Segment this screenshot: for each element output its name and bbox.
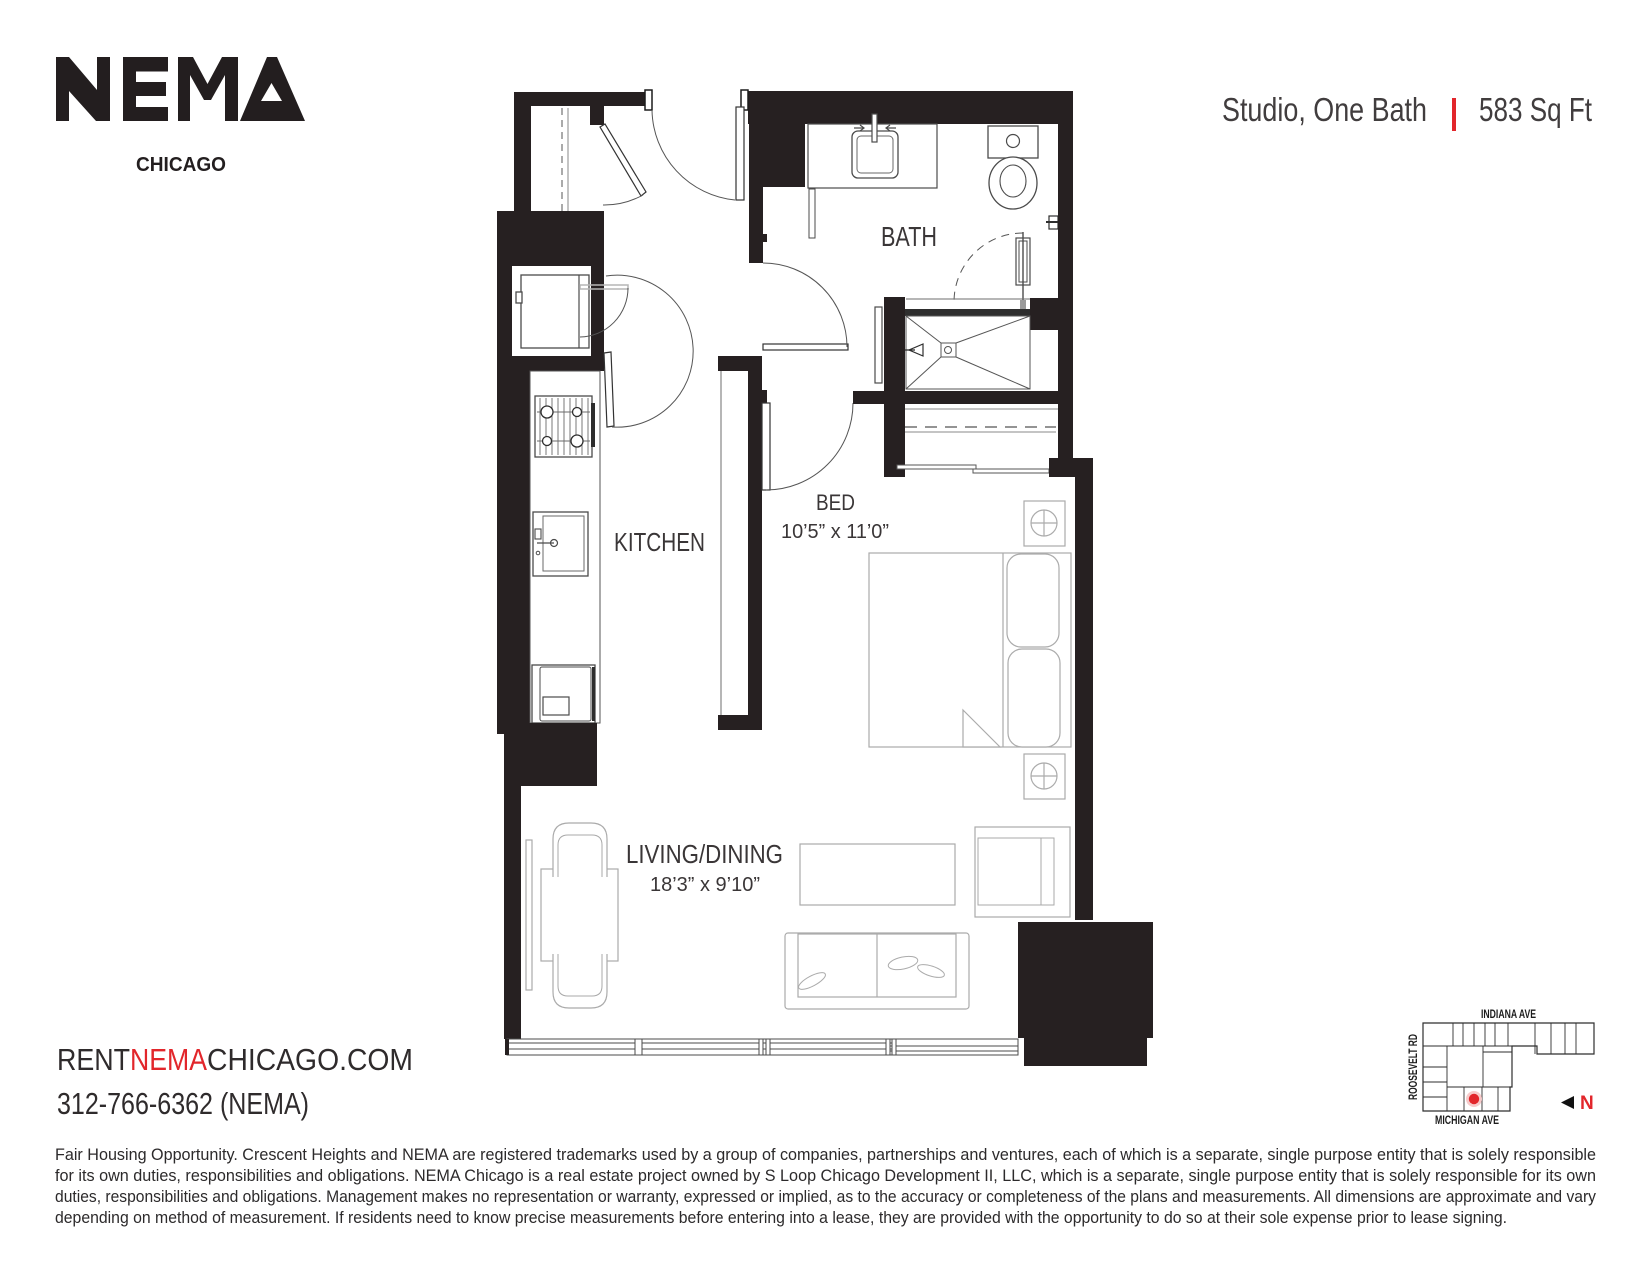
svg-text:Studio, One Bath: Studio, One Bath <box>1222 91 1427 128</box>
svg-text:MICHIGAN AVE: MICHIGAN AVE <box>1435 1113 1499 1127</box>
svg-text:CHICAGO: CHICAGO <box>136 154 226 176</box>
svg-text:NEMA: NEMA <box>130 1042 207 1077</box>
svg-text:583 Sq Ft: 583 Sq Ft <box>1479 91 1592 128</box>
svg-text:BED: BED <box>816 490 855 515</box>
svg-text:CHICAGO.COM: CHICAGO.COM <box>207 1042 413 1077</box>
svg-text:Fair Housing Opportunity. Cres: Fair Housing Opportunity. Crescent Heigh… <box>55 1145 1596 1164</box>
svg-text:10’5” x 11’0”: 10’5” x 11’0” <box>781 521 889 543</box>
svg-text:RENT: RENT <box>57 1042 130 1077</box>
svg-text:ROOSEVELT RD: ROOSEVELT RD <box>1406 1034 1420 1100</box>
svg-text:INDIANA AVE: INDIANA AVE <box>1481 1007 1536 1021</box>
svg-text:depending on method of measure: depending on method of measurement. If r… <box>55 1208 1507 1227</box>
svg-text:LIVING/DINING: LIVING/DINING <box>626 839 783 869</box>
svg-text:18’3” x 9’10”: 18’3” x 9’10” <box>650 874 760 896</box>
svg-text:BATH: BATH <box>881 221 937 252</box>
svg-text:KITCHEN: KITCHEN <box>614 527 705 557</box>
svg-text:duties, responsibilities and o: duties, responsibilities and obligations… <box>55 1187 1596 1206</box>
svg-text:for its own duties, responsibi: for its own duties, responsibilities and… <box>55 1166 1596 1185</box>
svg-text:N: N <box>1580 1093 1594 1114</box>
svg-text:312-766-6362 (NEMA): 312-766-6362 (NEMA) <box>57 1086 309 1121</box>
